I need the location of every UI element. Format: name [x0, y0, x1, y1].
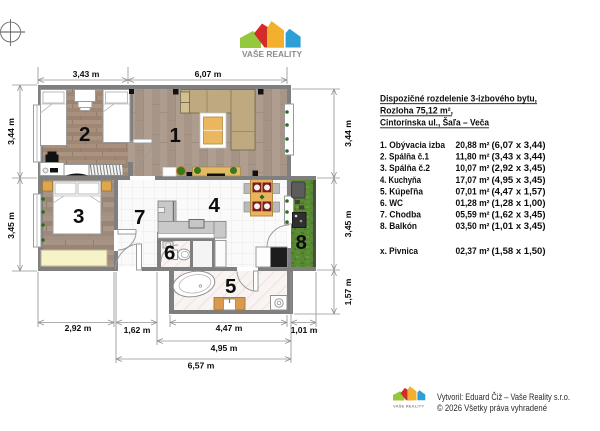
svg-text:10,07 m²: 10,07 m²: [456, 163, 490, 173]
svg-text:6,07 m: 6,07 m: [195, 69, 222, 79]
svg-text:4,47 m: 4,47 m: [216, 323, 243, 333]
svg-text:Dispozičné rozdelenie 3-izbové: Dispozičné rozdelenie 3-izbového bytu,: [380, 94, 537, 104]
svg-text:(2,92 x 3,45): (2,92 x 3,45): [492, 163, 546, 173]
svg-text:20,88 m²: 20,88 m²: [456, 140, 490, 150]
svg-text:07,01 m²: 07,01 m²: [456, 186, 490, 196]
svg-text:© 2026 Všetky práva vyhradené: © 2026 Všetky práva vyhradené: [437, 403, 547, 413]
svg-text:Rozloha 75,12 m²,: Rozloha 75,12 m²,: [380, 106, 453, 116]
svg-text:2. Spálňa č.1: 2. Spálňa č.1: [380, 152, 429, 162]
svg-text:7: 7: [134, 206, 145, 229]
svg-text:2: 2: [79, 123, 90, 146]
svg-text:5. Kúpeľňa: 5. Kúpeľňa: [380, 186, 423, 196]
svg-text:5: 5: [225, 275, 236, 298]
svg-text:(6,07 x 3,44): (6,07 x 3,44): [492, 140, 546, 150]
svg-text:Vytvoril: Eduard Čiž – Vaše Re: Vytvoril: Eduard Čiž – Vaše Reality s.r.…: [437, 392, 570, 402]
svg-text:1,62 m: 1,62 m: [124, 325, 151, 335]
svg-text:2,92 m: 2,92 m: [65, 323, 92, 333]
svg-text:8: 8: [296, 231, 307, 254]
svg-text:6. WC: 6. WC: [380, 198, 404, 208]
svg-text:3,45 m: 3,45 m: [6, 212, 16, 239]
svg-text:(4,95 x 3,45): (4,95 x 3,45): [492, 175, 546, 185]
svg-text:(1,62 x 3,45): (1,62 x 3,45): [492, 210, 546, 220]
svg-text:Cintorínska ul., Šaľa – Veča: Cintorínska ul., Šaľa – Veča: [380, 117, 489, 128]
svg-text:17,07 m²: 17,07 m²: [456, 175, 490, 185]
svg-text:02,37 m²: 02,37 m²: [456, 246, 490, 256]
svg-text:01,28 m²: 01,28 m²: [456, 198, 490, 208]
svg-text:(4,47 x 1,57): (4,47 x 1,57): [492, 186, 546, 196]
svg-text:11,80 m²: 11,80 m²: [456, 152, 490, 162]
svg-text:(3,43 x 3,44): (3,43 x 3,44): [492, 152, 546, 162]
svg-text:3,45 m: 3,45 m: [343, 210, 353, 237]
svg-text:(1,28 x 1,00): (1,28 x 1,00): [492, 198, 546, 208]
svg-text:3,44 m: 3,44 m: [6, 118, 16, 145]
svg-text:(1,01 x 3,45): (1,01 x 3,45): [492, 221, 546, 231]
svg-text:6: 6: [164, 242, 175, 265]
svg-text:VAŠE REALITY: VAŠE REALITY: [393, 404, 424, 409]
svg-text:4. Kuchyňa: 4. Kuchyňa: [380, 175, 421, 185]
svg-text:1,01 m: 1,01 m: [291, 325, 318, 335]
svg-text:3,44 m: 3,44 m: [343, 120, 353, 147]
svg-text:1: 1: [170, 124, 181, 147]
svg-text:03,50 m²: 03,50 m²: [456, 221, 490, 231]
svg-text:05,59 m²: 05,59 m²: [456, 210, 490, 220]
svg-text:3. Spálňa č.2: 3. Spálňa č.2: [380, 163, 430, 173]
svg-text:7. Chodba: 7. Chodba: [380, 210, 421, 220]
svg-text:8. Balkón: 8. Balkón: [380, 221, 417, 231]
svg-text:6,57 m: 6,57 m: [188, 361, 215, 371]
svg-text:x. Pivnica: x. Pivnica: [380, 246, 418, 256]
svg-text:VAŠE REALITY: VAŠE REALITY: [242, 48, 302, 59]
svg-text:4: 4: [209, 194, 221, 217]
svg-text:1,57 m: 1,57 m: [343, 278, 353, 305]
svg-text:(1,58 x 1,50): (1,58 x 1,50): [492, 246, 546, 256]
svg-text:3,43 m: 3,43 m: [73, 69, 100, 79]
svg-text:4,95 m: 4,95 m: [211, 343, 238, 353]
svg-text:3: 3: [73, 205, 84, 228]
svg-text:1. Obývacia izba: 1. Obývacia izba: [380, 140, 445, 150]
